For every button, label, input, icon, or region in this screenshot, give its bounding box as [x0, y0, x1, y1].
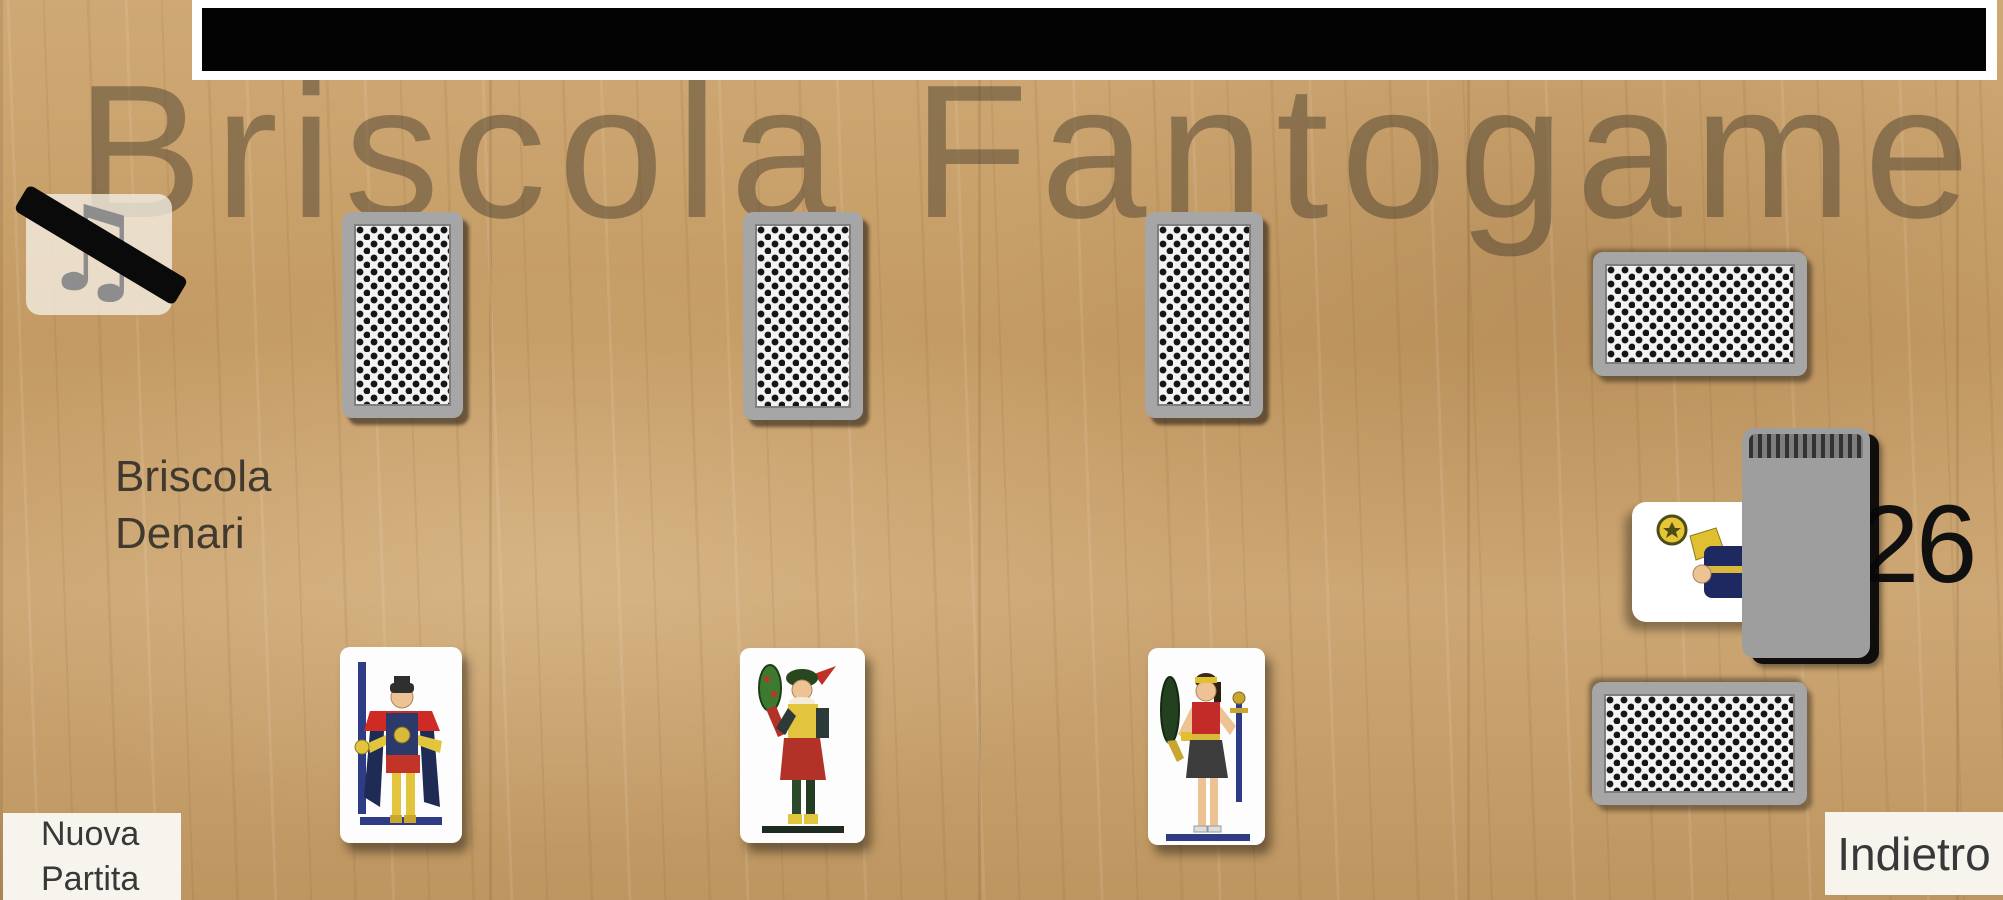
- club-and-sword-figure-card-icon: [1148, 648, 1265, 845]
- new-game-button-label: Nuova Partita: [41, 812, 181, 900]
- game-table: Briscola Fantogame ♫ Briscola Denari: [0, 0, 2003, 900]
- card-back-pattern: [1157, 224, 1251, 406]
- club-figure-card-icon: [740, 648, 865, 843]
- card-back-pattern: [354, 224, 451, 406]
- player-captured-pile: [1592, 682, 1807, 805]
- back-button[interactable]: Indietro: [1825, 812, 2003, 895]
- sword-figure-card-icon: [340, 647, 462, 843]
- deck-count: 26: [1858, 490, 1974, 600]
- briscola-indicator-label: Briscola Denari: [115, 448, 272, 562]
- briscola-label-line2: Denari: [115, 505, 272, 562]
- opponent-card-back-3: [1145, 212, 1263, 418]
- opponent-card-back-1: [342, 212, 463, 418]
- sound-toggle-button[interactable]: ♫: [26, 194, 172, 315]
- new-game-button[interactable]: Nuova Partita: [3, 813, 181, 900]
- back-button-label: Indietro: [1837, 827, 1990, 881]
- player-card-2[interactable]: [740, 648, 865, 843]
- briscola-label-line1: Briscola: [115, 448, 272, 505]
- ad-banner[interactable]: [192, 0, 1997, 80]
- card-back-pattern: [755, 224, 851, 408]
- player-card-1[interactable]: [340, 647, 462, 843]
- player-card-3[interactable]: [1148, 648, 1265, 845]
- opponent-captured-pile: [1593, 252, 1807, 376]
- ad-banner-content: [202, 8, 1986, 71]
- deck-stack-edge: [1749, 434, 1863, 458]
- opponent-card-back-2: [743, 212, 863, 420]
- deck-pile: [1742, 428, 1870, 658]
- card-back-pattern: [1604, 694, 1795, 793]
- card-back-pattern: [1605, 264, 1795, 364]
